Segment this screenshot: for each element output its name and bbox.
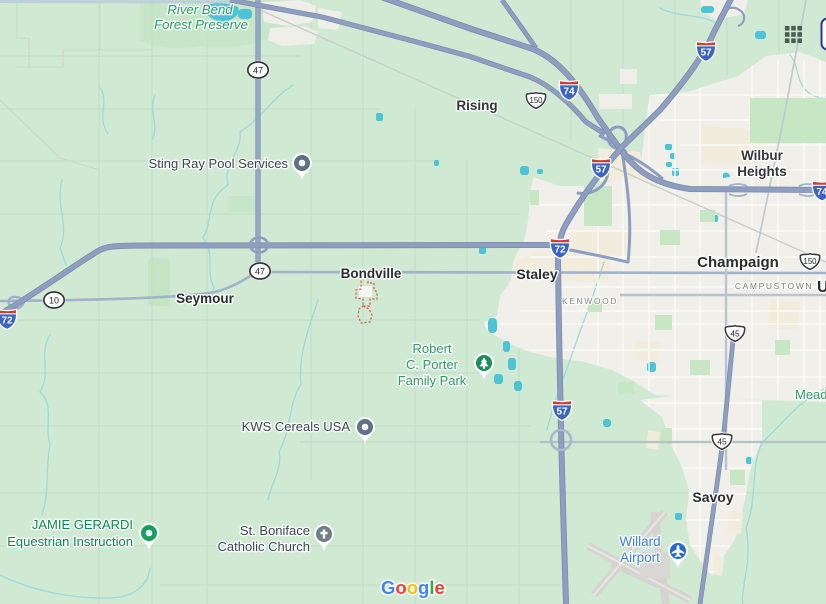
svg-text:KENWOOD: KENWOOD bbox=[562, 296, 618, 306]
svg-text:Wilbur: Wilbur bbox=[741, 148, 784, 163]
svg-text:Seymour: Seymour bbox=[176, 291, 235, 306]
svg-text:150: 150 bbox=[529, 96, 543, 105]
svg-text:C. Porter: C. Porter bbox=[406, 357, 459, 372]
svg-text:45: 45 bbox=[730, 329, 740, 339]
svg-text:150: 150 bbox=[803, 257, 817, 266]
svg-text:Forest Preserve: Forest Preserve bbox=[154, 17, 248, 32]
svg-text:Champaign: Champaign bbox=[697, 254, 779, 271]
svg-text:Bondville: Bondville bbox=[341, 266, 402, 281]
svg-text:KWS Cereals USA: KWS Cereals USA bbox=[242, 419, 351, 434]
svg-text:72: 72 bbox=[1, 316, 13, 327]
svg-text:Heights: Heights bbox=[737, 164, 787, 179]
svg-text:Catholic Church: Catholic Church bbox=[218, 539, 311, 554]
svg-text:St. Boniface: St. Boniface bbox=[240, 523, 310, 538]
svg-text:Robert: Robert bbox=[412, 341, 451, 356]
svg-text:Meado: Meado bbox=[795, 387, 826, 402]
svg-text:Sting Ray Pool Services: Sting Ray Pool Services bbox=[149, 156, 289, 171]
svg-text:47: 47 bbox=[253, 66, 263, 76]
svg-text:Staley: Staley bbox=[516, 266, 557, 282]
svg-text:47: 47 bbox=[255, 267, 265, 277]
svg-text:10: 10 bbox=[49, 296, 59, 306]
svg-text:Equestrian Instruction: Equestrian Instruction bbox=[7, 534, 133, 549]
svg-text:Google: Google bbox=[381, 577, 445, 598]
svg-text:JAMIE GERARDI: JAMIE GERARDI bbox=[32, 517, 133, 532]
svg-text:74: 74 bbox=[816, 187, 826, 198]
svg-text:74: 74 bbox=[563, 87, 575, 98]
svg-text:57: 57 bbox=[556, 407, 568, 418]
svg-text:Willard: Willard bbox=[619, 534, 660, 549]
svg-text:45: 45 bbox=[717, 437, 727, 447]
svg-text:CAMPUSTOWN: CAMPUSTOWN bbox=[735, 281, 813, 291]
svg-text:57: 57 bbox=[595, 165, 607, 176]
svg-text:U: U bbox=[817, 279, 826, 296]
svg-text:57: 57 bbox=[700, 48, 712, 59]
svg-text:Family Park: Family Park bbox=[398, 373, 467, 388]
svg-text:72: 72 bbox=[554, 245, 566, 256]
svg-text:Rising: Rising bbox=[456, 98, 497, 113]
svg-text:Savoy: Savoy bbox=[692, 489, 733, 505]
svg-text:River Bend: River Bend bbox=[167, 2, 233, 17]
svg-text:Airport: Airport bbox=[620, 550, 660, 565]
